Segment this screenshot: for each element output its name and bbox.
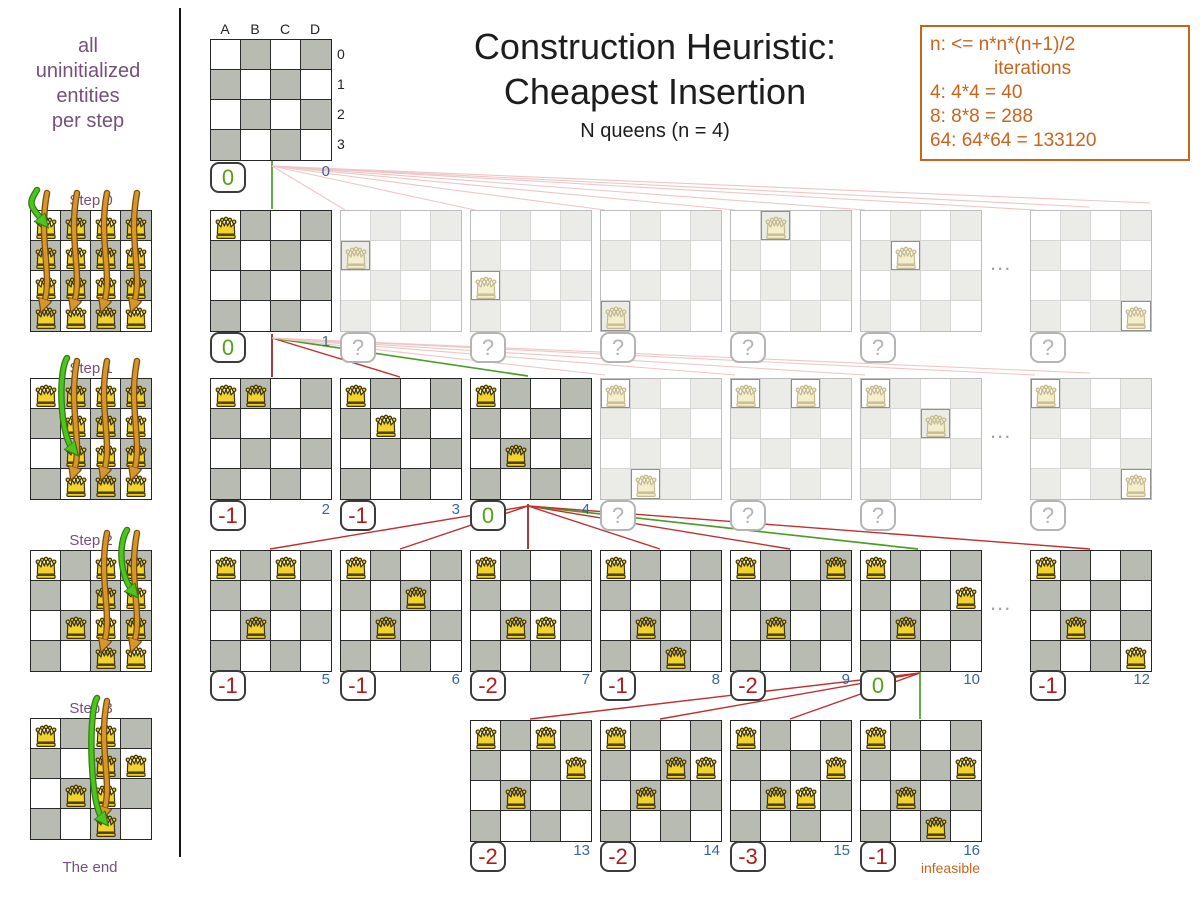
score-badge: -2 (600, 841, 636, 872)
board-cell (921, 551, 951, 581)
board-cell (1091, 379, 1121, 409)
board-cell (431, 581, 461, 611)
board-cell (471, 751, 501, 781)
board-cell (561, 439, 591, 469)
board-cell (1121, 551, 1151, 581)
board-cell (761, 641, 791, 671)
queen-icon (93, 472, 119, 498)
board-cell (431, 241, 461, 271)
score-badge: 0 (860, 670, 896, 701)
board-cell (501, 301, 531, 331)
board-cell (531, 551, 561, 581)
queen-icon (63, 442, 89, 468)
board-cell (661, 721, 691, 751)
queen-icon (93, 244, 119, 270)
board-cell (661, 379, 691, 409)
queen-icon (123, 304, 149, 330)
board-cell (921, 641, 951, 671)
queen-icon (343, 554, 369, 580)
board-cell (471, 409, 501, 439)
board-cell (921, 611, 951, 641)
row-label: 1 (337, 76, 353, 92)
board-cell (761, 811, 791, 841)
board-cell (401, 211, 431, 241)
page-title-line1: Construction Heuristic: (390, 24, 920, 69)
board-cell (951, 379, 981, 409)
board-cell (241, 70, 271, 100)
board-cell (271, 469, 301, 499)
queen-icon (33, 274, 59, 300)
board-cell (821, 641, 851, 671)
queen-icon (823, 754, 849, 780)
board-cell (501, 721, 531, 751)
board-cell (691, 469, 721, 499)
board (340, 550, 462, 672)
board-cell (761, 379, 791, 409)
board-cell (471, 241, 501, 271)
board-cell (31, 469, 61, 499)
queen-icon (1033, 554, 1059, 580)
board-cell (951, 811, 981, 841)
board-cell (861, 811, 891, 841)
board-cell (821, 811, 851, 841)
board-cell (1091, 469, 1121, 499)
board-cell (341, 611, 371, 641)
board-cell (301, 241, 331, 271)
board (470, 210, 592, 332)
iteration-number: 16 (944, 842, 980, 859)
board-cell (1061, 469, 1091, 499)
board-cell (301, 100, 331, 130)
board-cell (1061, 409, 1091, 439)
board-cell (1031, 581, 1061, 611)
board-cell (731, 271, 761, 301)
info-line: 4: 4*4 = 40 (930, 81, 1180, 105)
board-cell (371, 581, 401, 611)
board-cell (761, 271, 791, 301)
iteration-number: 10 (944, 671, 980, 688)
board-cell (371, 301, 401, 331)
board-cell (921, 469, 951, 499)
board-cell (631, 751, 661, 781)
board-cell (691, 379, 721, 409)
board-cell (561, 781, 591, 811)
queen-icon (473, 724, 499, 750)
queen-icon (33, 382, 59, 408)
board-cell (31, 439, 61, 469)
queen-icon (123, 752, 149, 778)
board-cell (761, 409, 791, 439)
board (30, 718, 152, 840)
score-badge: -1 (210, 670, 246, 701)
board-cell (471, 641, 501, 671)
queen-icon (93, 614, 119, 640)
queen-icon (93, 382, 119, 408)
board-cell (371, 641, 401, 671)
board-cell (1031, 611, 1061, 641)
score-badge: -2 (470, 670, 506, 701)
queen-icon (33, 304, 59, 330)
score-badge: ? (860, 500, 896, 531)
board-cell (501, 409, 531, 439)
board-cell (371, 439, 401, 469)
board-cell (371, 551, 401, 581)
queen-icon (503, 442, 529, 468)
board-cell (271, 241, 301, 271)
queen-icon (953, 584, 979, 610)
board-cell (1121, 241, 1151, 271)
board-cell (891, 379, 921, 409)
board-cell (501, 271, 531, 301)
queen-icon (123, 412, 149, 438)
score-badge: ? (600, 500, 636, 531)
board-cell (731, 469, 761, 499)
queen-icon (1123, 472, 1149, 498)
board-cell (211, 581, 241, 611)
board-cell (271, 271, 301, 301)
board-cell (631, 271, 661, 301)
board-cell (691, 721, 721, 751)
queen-icon (533, 614, 559, 640)
board-cell (761, 721, 791, 751)
board-cell (1091, 409, 1121, 439)
queen-icon (763, 784, 789, 810)
board-cell (921, 751, 951, 781)
board-cell (1031, 439, 1061, 469)
queen-icon (633, 472, 659, 498)
board-cell (731, 781, 761, 811)
queen-icon (213, 382, 239, 408)
iteration-number: 13 (554, 842, 590, 859)
board-cell (1121, 409, 1151, 439)
board-cell (531, 409, 561, 439)
info-line: iterations (930, 57, 1180, 81)
score-badge: ? (860, 332, 896, 363)
board-cell (631, 811, 661, 841)
board (470, 378, 592, 500)
queen-icon (663, 754, 689, 780)
board-cell (791, 551, 821, 581)
board-cell (731, 581, 761, 611)
iterations-info-box: n: <= n*n*(n+1)/2 iterations 4: 4*4 = 40… (920, 25, 1190, 161)
score-badge: -3 (730, 841, 766, 872)
board-cell (341, 301, 371, 331)
board-cell (301, 611, 331, 641)
queen-icon (123, 274, 149, 300)
board-cell (211, 301, 241, 331)
board-cell (371, 241, 401, 271)
queen-icon (763, 614, 789, 640)
page-subtitle: N queens (n = 4) (390, 118, 920, 144)
ellipsis: ... (990, 250, 1011, 276)
queen-icon (93, 722, 119, 748)
board-cell (1121, 379, 1151, 409)
board-cell (371, 271, 401, 301)
queen-icon (893, 784, 919, 810)
queen-icon (633, 614, 659, 640)
board-cell (401, 271, 431, 301)
board (600, 210, 722, 332)
board-cell (601, 611, 631, 641)
board-cell (821, 271, 851, 301)
queen-icon (793, 382, 819, 408)
board-cell (821, 781, 851, 811)
board-cell (821, 581, 851, 611)
board-cell (301, 581, 331, 611)
board-cell (301, 40, 331, 70)
board-cell (501, 379, 531, 409)
board-cell (1061, 551, 1091, 581)
board-cell (921, 379, 951, 409)
board-cell (471, 781, 501, 811)
board-cell (891, 721, 921, 751)
board-cell (1061, 641, 1091, 671)
board-cell (1061, 211, 1091, 241)
board-cell (271, 211, 301, 241)
board-cell (691, 781, 721, 811)
board-cell (1031, 241, 1061, 271)
board-cell (211, 469, 241, 499)
board-cell (791, 241, 821, 271)
iteration-number: 6 (424, 671, 460, 688)
board-cell (691, 241, 721, 271)
board-cell (301, 641, 331, 671)
board-cell (861, 581, 891, 611)
board-cell (731, 811, 761, 841)
board-cell (951, 781, 981, 811)
queen-icon (273, 554, 299, 580)
board (30, 378, 152, 500)
queen-icon (33, 554, 59, 580)
board-cell (1031, 469, 1061, 499)
queen-icon (1123, 644, 1149, 670)
board-cell (1091, 551, 1121, 581)
board-cell (501, 211, 531, 241)
board-cell (821, 241, 851, 271)
board-cell (401, 641, 431, 671)
board-cell (921, 581, 951, 611)
board-cell (1091, 211, 1121, 241)
iteration-number: 15 (814, 842, 850, 859)
board-cell (471, 581, 501, 611)
board-cell (861, 469, 891, 499)
queen-icon (923, 412, 949, 438)
row-label: 3 (337, 136, 353, 152)
board-cell (241, 241, 271, 271)
board-cell (731, 409, 761, 439)
board-cell (1091, 241, 1121, 271)
score-badge: -2 (470, 841, 506, 872)
board-cell (661, 781, 691, 811)
board-cell (431, 379, 461, 409)
board-cell (61, 809, 91, 839)
board (1030, 378, 1152, 500)
board-cell (241, 439, 271, 469)
board-cell (601, 581, 631, 611)
board-cell (631, 379, 661, 409)
queen-icon (93, 812, 119, 838)
board (860, 378, 982, 500)
queen-icon (33, 244, 59, 270)
board-cell (241, 581, 271, 611)
board-cell (661, 241, 691, 271)
queen-icon (243, 614, 269, 640)
board-cell (791, 271, 821, 301)
board-cell (271, 70, 301, 100)
board-cell (731, 439, 761, 469)
board-cell (601, 241, 631, 271)
board-cell (601, 211, 631, 241)
score-badge: -1 (340, 500, 376, 531)
board-cell (211, 409, 241, 439)
board-cell (791, 751, 821, 781)
board-cell (631, 439, 661, 469)
board-cell (31, 641, 61, 671)
queen-icon (733, 724, 759, 750)
queen-icon (63, 782, 89, 808)
board-cell (531, 641, 561, 671)
board-cell (761, 241, 791, 271)
board-cell (761, 551, 791, 581)
board-cell (951, 301, 981, 331)
column-label: C (273, 21, 297, 37)
board (210, 378, 332, 500)
board-cell (531, 751, 561, 781)
board-cell (1091, 581, 1121, 611)
board-cell (271, 40, 301, 70)
board-cell (1061, 581, 1091, 611)
board-cell (791, 469, 821, 499)
board-cell (791, 611, 821, 641)
board-cell (531, 241, 561, 271)
board-cell (341, 211, 371, 241)
queen-icon (123, 442, 149, 468)
board-cell (1031, 641, 1061, 671)
board-cell (341, 581, 371, 611)
board-cell (431, 409, 461, 439)
board (860, 550, 982, 672)
board-cell (1121, 271, 1151, 301)
queen-icon (63, 382, 89, 408)
queen-icon (63, 214, 89, 240)
queen-icon (63, 472, 89, 498)
board-cell (31, 409, 61, 439)
board-cell (531, 811, 561, 841)
queen-icon (733, 382, 759, 408)
board (340, 210, 462, 332)
board-cell (791, 301, 821, 331)
queen-icon (473, 382, 499, 408)
board-cell (1121, 611, 1151, 641)
board-cell (921, 439, 951, 469)
board-cell (531, 271, 561, 301)
board-cell (601, 271, 631, 301)
board-cell (761, 439, 791, 469)
board-cell (861, 641, 891, 671)
queen-icon (793, 784, 819, 810)
step-label: Step 1 (30, 360, 152, 377)
board-cell (661, 469, 691, 499)
board-cell (341, 271, 371, 301)
iteration-number: 14 (684, 842, 720, 859)
board-cell (891, 469, 921, 499)
board-cell (861, 301, 891, 331)
board-cell (401, 611, 431, 641)
board-cell (631, 241, 661, 271)
board (600, 720, 722, 842)
board (860, 720, 982, 842)
iteration-number: 2 (294, 501, 330, 518)
board-cell (861, 781, 891, 811)
board-cell (211, 70, 241, 100)
board-cell (241, 271, 271, 301)
board-cell (731, 751, 761, 781)
board-cell (61, 581, 91, 611)
score-badge: -2 (730, 670, 766, 701)
board-cell (501, 469, 531, 499)
board-cell (1061, 439, 1091, 469)
board-cell (791, 811, 821, 841)
queen-icon (373, 614, 399, 640)
board-cell (691, 301, 721, 331)
board-cell (661, 301, 691, 331)
board-cell (61, 551, 91, 581)
queen-icon (893, 244, 919, 270)
score-badge: ? (470, 332, 506, 363)
board-cell (761, 469, 791, 499)
board-cell (471, 611, 501, 641)
board-cell (691, 641, 721, 671)
board-cell (951, 271, 981, 301)
board-cell (691, 551, 721, 581)
board-cell (891, 811, 921, 841)
queen-icon (93, 274, 119, 300)
board (470, 550, 592, 672)
board (210, 550, 332, 672)
board-cell (341, 469, 371, 499)
board-cell (501, 811, 531, 841)
board-cell (561, 721, 591, 751)
board-cell (861, 611, 891, 641)
queen-icon (63, 244, 89, 270)
board-cell (691, 611, 721, 641)
queen-icon (123, 614, 149, 640)
board-cell (601, 641, 631, 671)
board-cell (691, 271, 721, 301)
queen-icon (923, 814, 949, 840)
queen-icon (63, 412, 89, 438)
score-badge: 0 (470, 500, 506, 531)
board-cell (241, 211, 271, 241)
score-badge: -1 (210, 500, 246, 531)
board-cell (821, 301, 851, 331)
board-cell (471, 469, 501, 499)
board-cell (401, 469, 431, 499)
queen-icon (603, 724, 629, 750)
board-cell (791, 409, 821, 439)
queen-icon (863, 554, 889, 580)
board-cell (61, 641, 91, 671)
board-cell (401, 301, 431, 331)
board-cell (631, 641, 661, 671)
queen-icon (603, 554, 629, 580)
board-cell (241, 301, 271, 331)
queen-icon (633, 784, 659, 810)
board-cell (501, 641, 531, 671)
caption-line: uninitialized (8, 59, 168, 84)
board-cell (951, 439, 981, 469)
board-cell (271, 301, 301, 331)
